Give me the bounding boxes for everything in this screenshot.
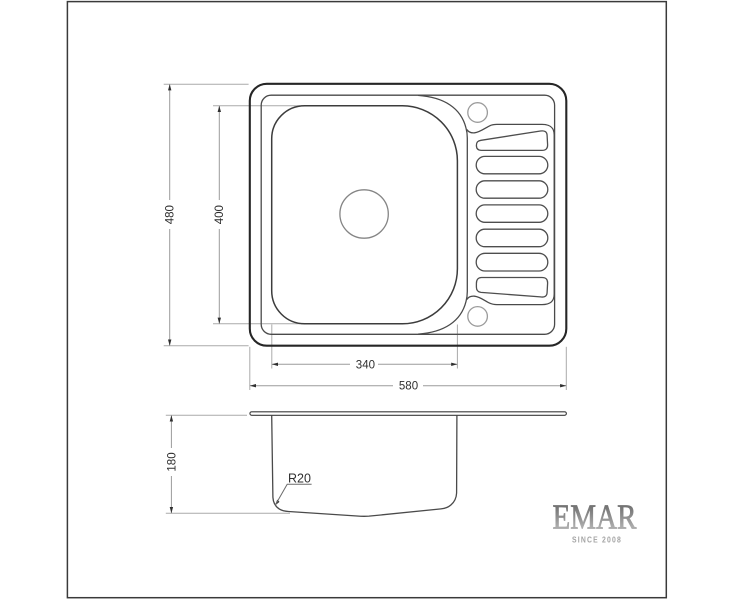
- svg-text:R20: R20: [288, 472, 311, 486]
- svg-text:340: 340: [356, 359, 375, 371]
- svg-text:EMAR: EMAR: [553, 498, 638, 537]
- svg-text:480: 480: [165, 205, 177, 224]
- svg-text:400: 400: [214, 205, 226, 224]
- svg-text:580: 580: [399, 381, 418, 393]
- svg-text:180: 180: [166, 452, 178, 471]
- svg-text:SINCE 2008: SINCE 2008: [572, 535, 622, 544]
